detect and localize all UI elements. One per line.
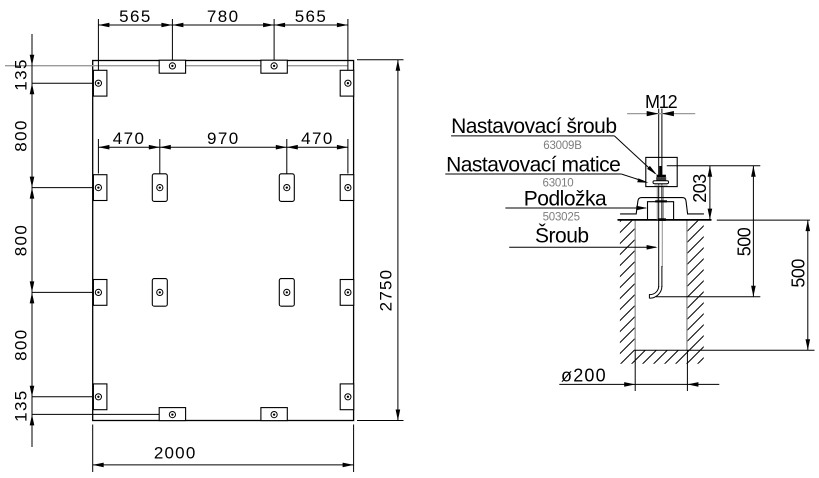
svg-text:500: 500 <box>735 227 755 256</box>
svg-text:780: 780 <box>207 7 240 26</box>
svg-text:ø200: ø200 <box>561 365 607 385</box>
svg-text:800: 800 <box>12 224 31 257</box>
svg-text:2000: 2000 <box>154 444 197 463</box>
svg-text:800: 800 <box>12 119 31 152</box>
svg-text:Šroub: Šroub <box>535 225 589 248</box>
svg-text:565: 565 <box>295 7 328 26</box>
svg-text:565: 565 <box>119 7 152 26</box>
svg-text:203: 203 <box>690 174 710 203</box>
svg-text:503025: 503025 <box>543 211 580 223</box>
svg-text:470: 470 <box>113 129 146 148</box>
svg-text:Nastavovací šroub: Nastavovací šroub <box>451 115 616 138</box>
svg-text:470: 470 <box>301 129 334 148</box>
svg-text:Nastavovací matice: Nastavovací matice <box>446 153 620 176</box>
svg-text:135: 135 <box>12 58 31 91</box>
svg-text:135: 135 <box>12 389 31 422</box>
svg-text:500: 500 <box>789 259 809 288</box>
svg-text:800: 800 <box>12 328 31 361</box>
svg-text:970: 970 <box>207 129 240 148</box>
svg-text:2750: 2750 <box>377 269 396 312</box>
svg-text:63009B: 63009B <box>543 140 582 152</box>
svg-text:M12: M12 <box>645 92 678 112</box>
svg-text:Podložka: Podložka <box>524 188 607 211</box>
